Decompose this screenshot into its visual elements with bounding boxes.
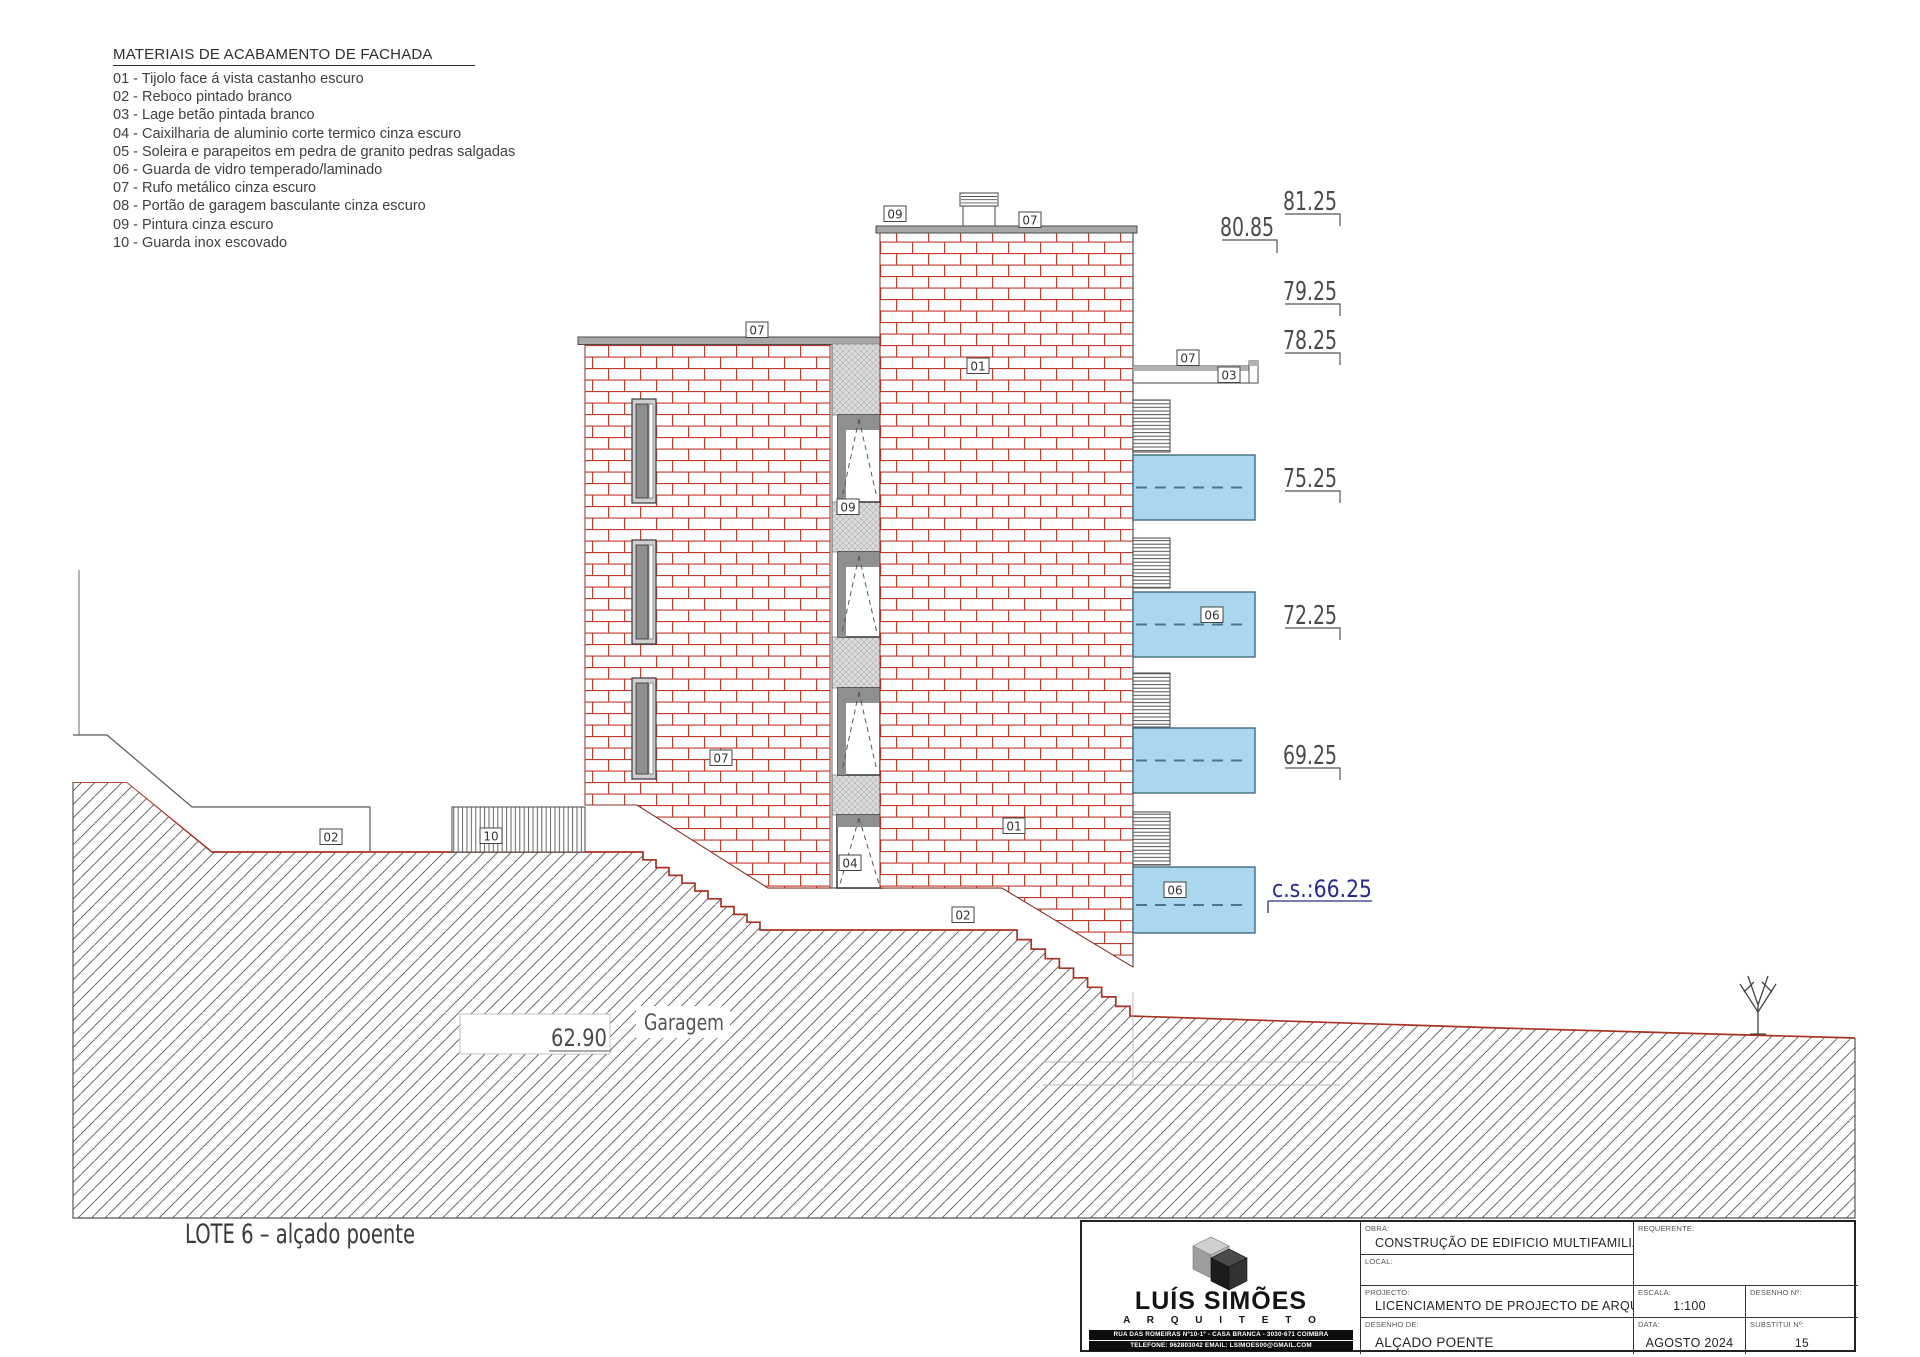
svg-text:07: 07 [1180,352,1195,366]
field-obra: OBRA: CONSTRUÇÃO DE EDIFICIO MULTIFAMILI… [1360,1222,1633,1254]
right-brick-tower [876,193,1137,967]
field-desenho-de: DESENHO DE: ALÇADO POENTE [1360,1317,1633,1354]
strip-window [838,552,880,637]
legend-item: 02 - Reboco pintado branco [113,88,515,106]
level-78-25: 78.25 [1283,326,1340,365]
glass-balcony [1133,455,1255,520]
svg-text:07: 07 [713,752,728,766]
legend-item: 01 - Tijolo face á vista castanho escuro [113,70,515,88]
field-requerente: REQUERENTE: [1633,1222,1858,1285]
svg-text:80.85: 80.85 [1220,213,1274,243]
level-62-90: 62.90 [460,1014,611,1054]
left-block-window [632,399,656,503]
architect-address: RUA DAS ROMEIRAS Nº10-1º - CASA BRANCA -… [1089,1330,1353,1340]
tag-01-tower-upper: 01 [967,358,989,374]
legend-item: 10 - Guarda inox escovado [113,234,515,252]
tag-04-strip-door: 04 [839,855,861,871]
svg-text:78.25: 78.25 [1283,326,1337,356]
louver-window [1133,400,1170,452]
legend-item: 09 - Pintura cinza escuro [113,216,515,234]
sheet-caption: LOTE 6 – alçado poente [185,1219,415,1250]
strip-window [838,688,880,775]
level-cs-66-25: c.s.:66.25 [1268,875,1372,913]
field-desenho-n: DESENHO Nº: [1745,1285,1858,1317]
louver-window [1133,538,1170,588]
logo-mark [1179,1232,1263,1294]
legend-item: 06 - Guarda de vidro temperado/laminado [113,161,515,179]
field-local: LOCAL: [1360,1254,1633,1285]
svg-text:62.90: 62.90 [551,1024,607,1052]
svg-text:75.25: 75.25 [1283,464,1337,494]
svg-text:03: 03 [1221,369,1236,383]
materials-legend: MATERIAIS DE ACABAMENTO DE FACHADA 01 - … [113,46,515,252]
left-block-window [632,540,656,644]
tag-06-balcony-4: 06 [1164,882,1186,898]
svg-text:06: 06 [1204,609,1219,623]
level-72-25: 72.25 [1283,601,1340,640]
field-data: DATA: AGOSTO 2024 [1633,1317,1745,1354]
tag-02-left-wall: 02 [320,829,342,845]
level-75-25: 75.25 [1283,464,1340,503]
svg-text:04: 04 [842,857,857,871]
svg-text:10: 10 [483,830,498,844]
svg-text:09: 09 [840,501,855,515]
svg-text:09: 09 [887,208,902,222]
legend-item: 08 - Portão de garagem basculante cinza … [113,197,515,215]
tag-10-railing: 10 [480,828,502,844]
svg-text:01: 01 [1006,820,1021,834]
svg-text:06: 06 [1167,884,1182,898]
inox-guard-rail [452,807,585,852]
svg-text:69.25: 69.25 [1283,741,1337,771]
glass-balcony [1133,728,1255,793]
central-stair-strip [832,344,882,888]
architect-name: LUÍS SIMÕES [1135,1288,1307,1314]
svg-text:72.25: 72.25 [1283,601,1337,631]
tag-07-left-block-low: 07 [710,750,732,766]
svg-text:79.25: 79.25 [1283,277,1337,307]
tag-02-base-wall: 02 [952,907,974,923]
tag-01-tower-lower: 01 [1003,818,1025,834]
legend-item: 05 - Soleira e parapeitos em pedra de gr… [113,143,515,161]
svg-text:07: 07 [1022,214,1037,228]
garage-label: Garagem [644,1011,724,1036]
title-block: LUÍS SIMÕES A R Q U I T E T O RUA DAS RO… [1080,1220,1856,1352]
level-81-25: 81.25 [1283,187,1340,226]
field-escala: ESCALA: 1:100 [1633,1285,1745,1317]
strip-window-door [837,815,882,888]
legend-item: 04 - Caixilharia de aluminio corte termi… [113,125,515,143]
level-80-85: 80.85 [1220,213,1277,253]
tag-09-strip-window: 09 [837,499,859,515]
field-substitui: SUBSTITUI Nº: 15 [1745,1317,1858,1354]
legend-title: MATERIAIS DE ACABAMENTO DE FACHADA [113,46,475,66]
svg-text:c.s.:66.25: c.s.:66.25 [1272,875,1372,903]
legend-item: 07 - Rufo metálico cinza escuro [113,179,515,197]
architect-title: A R Q U I T E T O [1123,1315,1323,1326]
tag-09-tower-top: 09 [884,206,906,222]
level-79-25: 79.25 [1283,277,1340,316]
tower-coping [876,226,1137,233]
svg-text:02: 02 [323,831,338,845]
tag-07-annexe-roof: 07 [1177,350,1199,366]
glass-balcony [1133,592,1255,657]
architect-contact: TELEFONE: 962803042 EMAIL: LSIMOES00@GMA… [1089,1341,1353,1351]
svg-text:02: 02 [955,909,970,923]
tag-07-tower-top: 07 [1019,212,1041,228]
glass-balcony [1133,867,1255,933]
chimney [960,193,998,226]
architect-logo: LUÍS SIMÕES A R Q U I T E T O RUA DAS RO… [1082,1222,1360,1354]
svg-text:07: 07 [749,324,764,338]
level-69-25: 69.25 [1283,741,1340,780]
strip-window [838,415,880,502]
left-block-window [632,678,656,779]
tag-03-annexe-slab: 03 [1218,367,1240,383]
left-block-coping [578,337,886,345]
annexe [1133,232,1258,967]
legend-item: 03 - Lage betão pintada branco [113,106,515,124]
tag-06-balcony-2: 06 [1201,607,1223,623]
louver-window [1133,673,1170,727]
tag-07-left-block-top: 07 [746,322,768,338]
tree-symbol [1740,976,1776,1034]
svg-text:01: 01 [970,360,985,374]
drawing-sheet: 09 07 07 01 07 03 06 06 07 09 04 01 02 1… [0,0,1920,1357]
svg-text:81.25: 81.25 [1283,187,1337,217]
field-projecto: PROJECTO: LICENCIAMENTO DE PROJECTO DE A… [1360,1285,1633,1317]
louver-window [1133,812,1170,865]
